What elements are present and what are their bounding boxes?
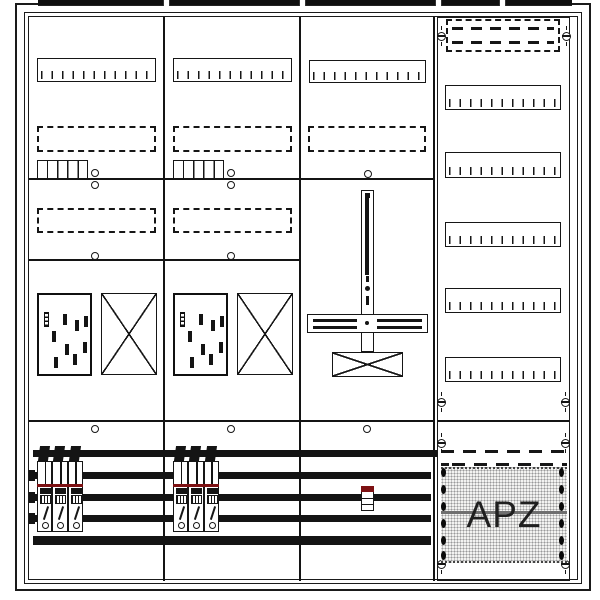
terminal-strip <box>445 357 561 382</box>
sls-breaker-pole <box>52 461 67 532</box>
breaker-label-box <box>55 495 66 504</box>
terminal-strip <box>37 58 156 82</box>
busbar-end-nub <box>29 492 35 503</box>
din-teeth <box>449 167 556 175</box>
cover-strip-dashes <box>441 450 567 453</box>
screw-dash-bottom <box>441 570 442 574</box>
horizontal-busbar <box>307 314 428 333</box>
terminal-comb <box>37 160 88 179</box>
meter-mark <box>73 354 77 365</box>
sls-breaker-pole <box>173 461 188 532</box>
breaker-terminal <box>38 446 50 461</box>
hbus-bar <box>377 319 422 323</box>
section-line <box>29 420 435 422</box>
meter-mark <box>211 320 215 331</box>
din-teeth <box>449 302 556 310</box>
meter-mark <box>63 314 67 325</box>
screw-slot <box>437 401 445 403</box>
sls-red-stripe <box>37 484 83 487</box>
terminal-strip <box>445 288 561 313</box>
meter-mark <box>54 357 58 368</box>
terminal-strip <box>445 152 561 178</box>
busbar-end-nub <box>29 470 35 481</box>
breaker-terminal <box>69 446 81 461</box>
terminal-strip <box>173 58 292 82</box>
hbus-center-dot <box>365 321 369 325</box>
screw-hole <box>227 181 235 189</box>
meter-mark <box>83 342 87 353</box>
breaker-label-box <box>71 495 82 504</box>
screw-dash-bottom <box>565 408 566 412</box>
reserved-area-dashed-box <box>37 208 156 233</box>
meter-mark <box>219 342 223 353</box>
breaker-center-line <box>196 462 198 485</box>
screw-hole <box>227 169 235 177</box>
dashed-row <box>452 41 554 44</box>
busbar <box>33 515 431 522</box>
meter-barcode <box>44 312 49 327</box>
reserved-area-dashed-box <box>173 126 292 152</box>
breaker-lever-line <box>43 506 49 520</box>
breaker-label-box <box>191 495 202 504</box>
meter-cabinet-diagram: APZ <box>0 0 600 600</box>
terminal-strip <box>445 85 561 110</box>
screw-hole <box>227 252 235 260</box>
screw <box>560 433 570 453</box>
hbus-bar <box>377 326 422 330</box>
breaker-bottom-hole <box>42 522 49 529</box>
breaker-lever-line <box>210 506 216 520</box>
breaker-terminal <box>174 446 186 461</box>
din-teeth <box>449 371 556 379</box>
column-divider <box>433 17 435 581</box>
terminal-strip <box>445 222 561 247</box>
meter-mark <box>199 314 203 325</box>
breaker-center-line <box>211 462 213 485</box>
terminal-strip <box>309 60 426 83</box>
tab-notch <box>435 0 442 6</box>
screw-hole <box>91 252 99 260</box>
busbar-end-nub <box>29 513 35 524</box>
screw-dash-top <box>441 392 442 396</box>
breaker-bottom-hole <box>193 522 200 529</box>
din-teeth <box>41 71 151 79</box>
screw-dash-bottom <box>441 449 442 453</box>
electricity-meter <box>37 293 92 376</box>
screw-dash-bottom <box>565 449 566 453</box>
reserved-area-dashed-box <box>308 126 426 152</box>
screw-slot <box>437 35 445 37</box>
screw <box>561 26 571 46</box>
breaker-bottom-hole <box>209 522 216 529</box>
meter-mark <box>84 316 88 327</box>
tab-notch <box>299 0 306 6</box>
sls-breaker-pole <box>204 461 219 532</box>
breaker-black-band <box>71 488 82 494</box>
screw <box>436 26 446 46</box>
screw <box>436 392 446 412</box>
screw-hole <box>227 425 235 433</box>
breaker-label-box <box>40 495 51 504</box>
busbar <box>33 450 437 457</box>
tab-notch <box>163 0 170 6</box>
breaker-terminal <box>205 446 217 461</box>
breaker-bottom-hole <box>178 522 185 529</box>
tab-notch <box>499 0 506 6</box>
screw-dash-bottom <box>565 570 566 574</box>
hbus-bar <box>313 319 357 323</box>
breaker-black-band <box>207 488 218 494</box>
vbus-main-line <box>365 197 369 275</box>
breaker-black-band <box>55 488 66 494</box>
meter-mark <box>209 354 213 365</box>
reserved-area-dashed-box <box>446 19 560 52</box>
sls-breaker-pole <box>37 461 52 532</box>
meter-mark <box>65 344 69 355</box>
meter-mark <box>220 316 224 327</box>
busbar <box>33 472 431 479</box>
breaker-bottom-hole <box>57 522 64 529</box>
breaker-bottom-hole <box>73 522 80 529</box>
screw-dash-top <box>565 433 566 437</box>
breaker-label-box <box>207 495 218 504</box>
apz-field-label: APZ <box>441 467 567 563</box>
screw-slot <box>437 563 445 565</box>
reserved-area-dashed-box <box>173 208 292 233</box>
screw-hole <box>91 169 99 177</box>
dashed-row <box>452 27 554 30</box>
screw-dash-top <box>441 433 442 437</box>
screw-hole <box>363 425 371 433</box>
breaker-black-band <box>40 488 51 494</box>
screw-dash-top <box>441 26 442 30</box>
breaker-center-line <box>60 462 62 485</box>
meter-mark <box>201 344 205 355</box>
screw-hole <box>364 170 372 178</box>
meter-barcode <box>180 312 185 327</box>
cover-strip-dashes <box>441 463 567 466</box>
screw-slot <box>562 35 570 37</box>
screw <box>436 433 446 453</box>
n-device-line <box>362 504 373 505</box>
din-teeth <box>449 236 556 244</box>
screw-dash-bottom <box>441 408 442 412</box>
sls-breaker-pole <box>68 461 83 532</box>
screw-dash-top <box>565 392 566 396</box>
screw-slot <box>561 401 569 403</box>
section-line <box>29 259 300 261</box>
screw-dash-bottom <box>566 42 567 46</box>
meter-mark <box>190 357 194 368</box>
din-teeth <box>177 71 287 79</box>
reserved-area-dashed-box <box>37 126 156 152</box>
breaker-black-band <box>191 488 202 494</box>
crossed-box <box>237 293 293 375</box>
hbus-bar <box>313 326 357 330</box>
vbus-dot <box>365 286 370 291</box>
sls-red-stripe <box>173 484 219 487</box>
screw-slot <box>561 442 569 444</box>
sls-breaker-pole <box>188 461 203 532</box>
breaker-lever-line <box>74 506 80 520</box>
din-teeth <box>449 99 556 107</box>
cabinet-top-tab-strip <box>38 0 572 6</box>
breaker-center-line <box>181 462 183 485</box>
breaker-center-line <box>75 462 77 485</box>
busbar <box>33 536 431 545</box>
breaker-black-band <box>176 488 187 494</box>
meter-mark <box>75 320 79 331</box>
n-device-line <box>362 498 373 499</box>
din-teeth <box>313 72 421 80</box>
screw <box>560 392 570 412</box>
terminal-comb <box>173 160 224 179</box>
crossed-box <box>332 352 403 377</box>
screw-dash-bottom <box>441 42 442 46</box>
vbus-dash <box>366 276 369 282</box>
meter-mark <box>188 331 192 342</box>
screw-slot <box>437 442 445 444</box>
electricity-meter <box>173 293 228 376</box>
breaker-lever-line <box>58 506 64 520</box>
breaker-lever-line <box>179 506 185 520</box>
breaker-lever-line <box>194 506 200 520</box>
screw-hole <box>91 425 99 433</box>
vbus-dash <box>366 296 369 305</box>
crossed-box <box>101 293 157 375</box>
breaker-label-box <box>176 495 187 504</box>
breaker-center-line <box>45 462 47 485</box>
screw-dash-top <box>566 26 567 30</box>
section-line <box>29 178 434 180</box>
screw-hole <box>91 181 99 189</box>
meter-mark <box>52 331 56 342</box>
n-terminal-device <box>361 486 374 511</box>
n-device-red-top <box>361 486 374 492</box>
screw-slot <box>561 563 569 565</box>
